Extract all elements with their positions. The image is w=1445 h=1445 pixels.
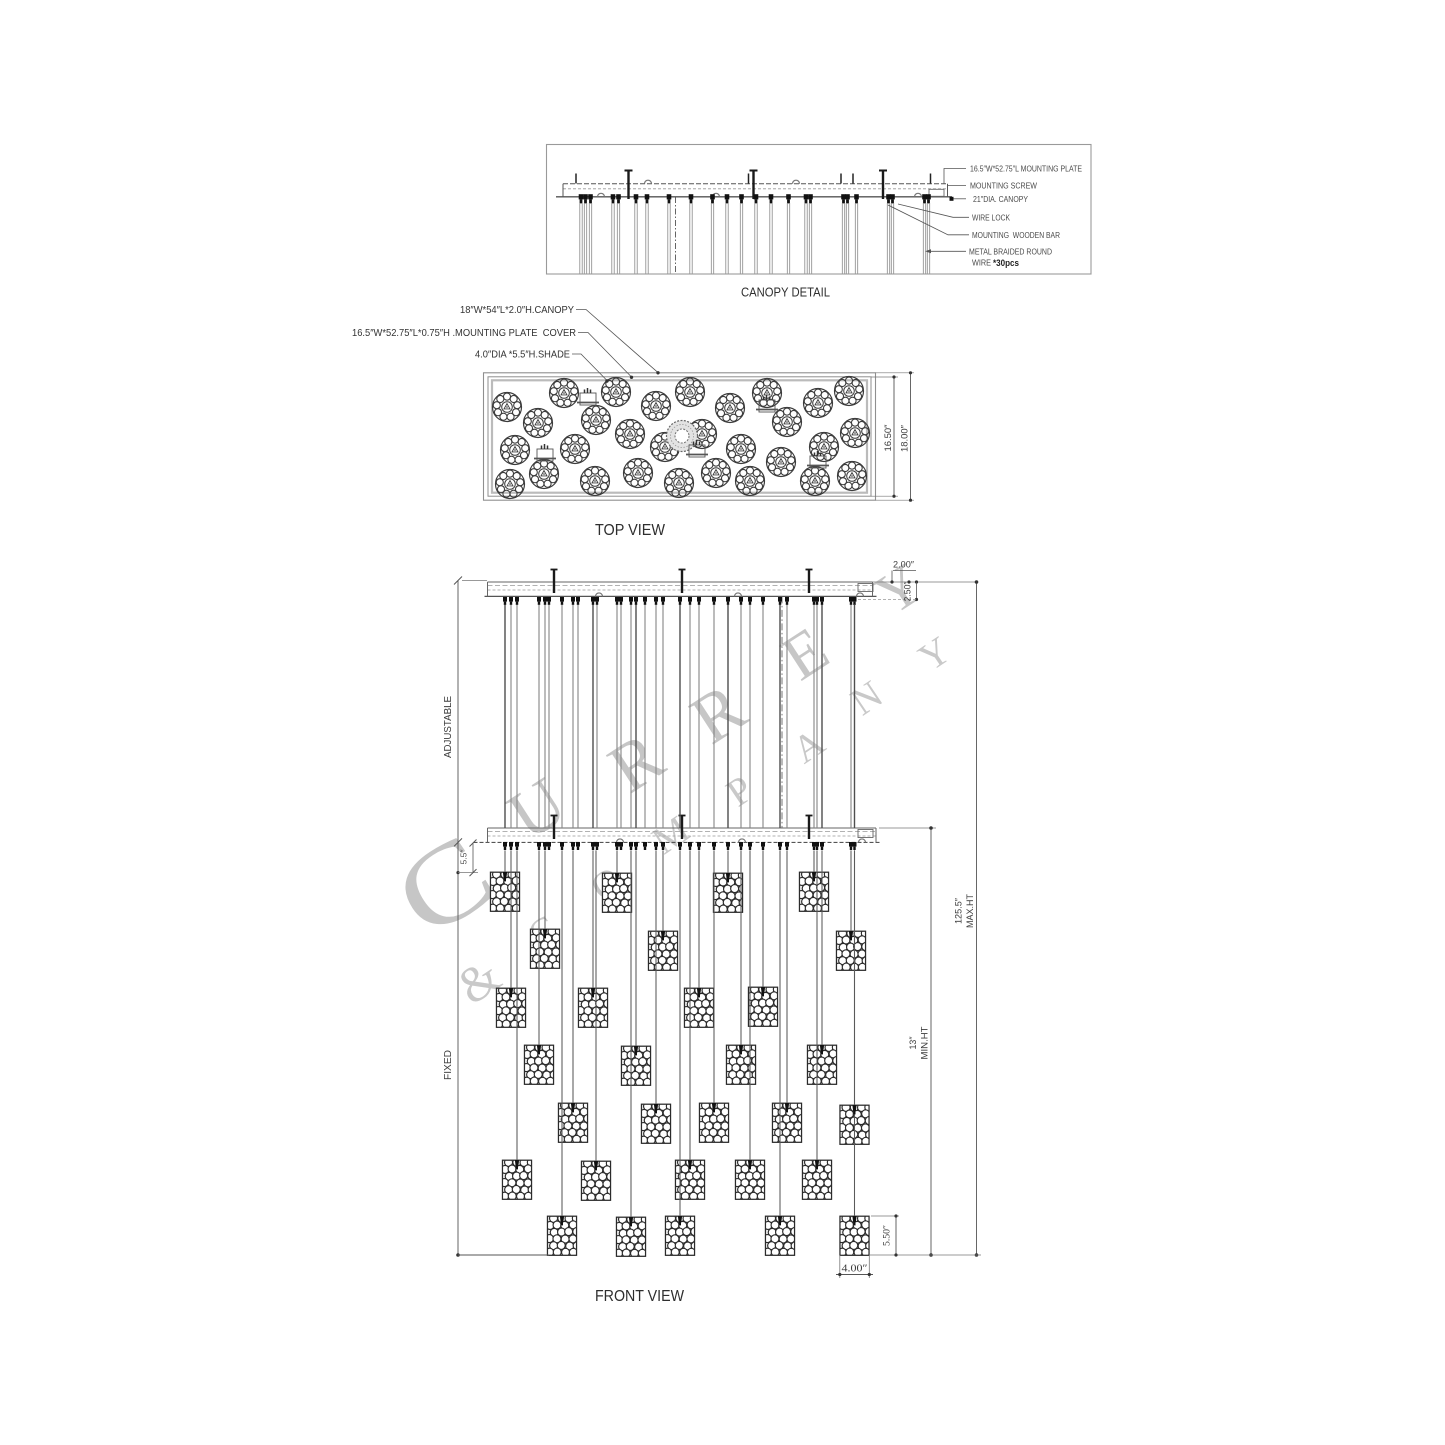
svg-text:16.5″W*52.75″L*0.75″H .MOUNTIN: 16.5″W*52.75″L*0.75″H .MOUNTING PLATE CO… [352, 327, 576, 339]
svg-text:2.00″: 2.00″ [893, 560, 915, 570]
svg-text:4.0″DIA *5.5″H.SHADE: 4.0″DIA *5.5″H.SHADE [475, 349, 570, 361]
svg-text:21″DIA. CANOPY: 21″DIA. CANOPY [973, 195, 1029, 204]
svg-text:2.50″: 2.50″ [903, 581, 913, 602]
svg-text:FRONT VIEW: FRONT VIEW [595, 1288, 684, 1305]
svg-text:18″W*54″L*2.0″H.CANOPY: 18″W*54″L*2.0″H.CANOPY [460, 304, 574, 316]
svg-text:4.00″: 4.00″ [842, 1264, 868, 1275]
svg-text:MAX.HT: MAX.HT [965, 894, 976, 928]
svg-text:*30pcs: *30pcs [993, 258, 1019, 269]
svg-text:FIXED: FIXED [442, 1050, 454, 1080]
svg-text:TOP VIEW: TOP VIEW [595, 522, 665, 539]
svg-text:18.00″: 18.00″ [900, 424, 911, 452]
svg-text:CANOPY DETAIL: CANOPY DETAIL [741, 286, 830, 300]
svg-text:MOUNTING WOODEN BAR: MOUNTING WOODEN BAR [972, 231, 1060, 240]
svg-text:16.5″W*52.75″L MOUNTING PLATE: 16.5″W*52.75″L MOUNTING PLATE [970, 165, 1082, 174]
svg-text:METAL BRAIDED ROUND: METAL BRAIDED ROUND [969, 247, 1052, 256]
svg-text:MIN.HT: MIN.HT [920, 1026, 931, 1059]
svg-text:MOUNTING SCREW: MOUNTING SCREW [970, 182, 1037, 191]
svg-text:ADJUSTABLE: ADJUSTABLE [442, 696, 454, 758]
svg-text:WIRE: WIRE [972, 259, 991, 268]
svg-text:5.50″: 5.50″ [882, 1225, 892, 1246]
svg-text:WIRE LOCK: WIRE LOCK [972, 213, 1011, 222]
svg-text:13″: 13″ [908, 1036, 919, 1050]
svg-text:125.5″: 125.5″ [954, 897, 965, 924]
svg-text:16.50″: 16.50″ [883, 424, 894, 452]
svg-text:5.5″: 5.5″ [460, 849, 469, 864]
